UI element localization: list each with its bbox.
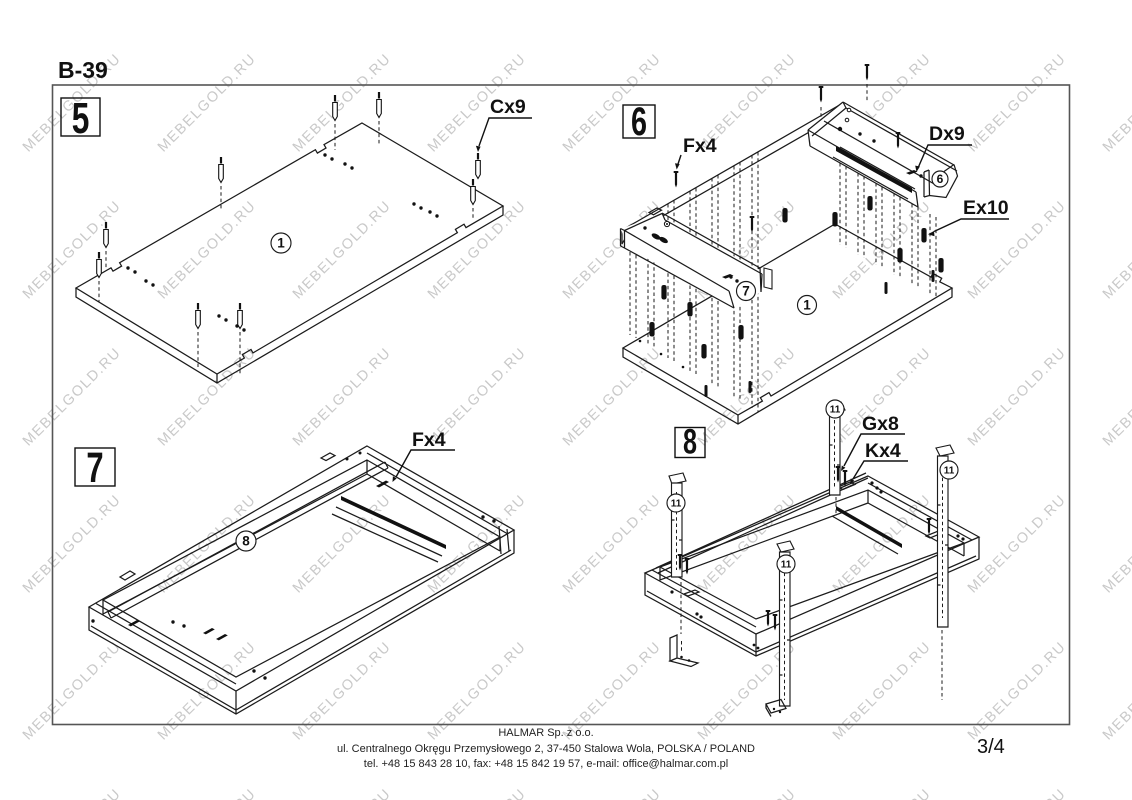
svg-text:3/4: 3/4 xyxy=(977,736,1005,758)
svg-text:6: 6 xyxy=(937,172,944,186)
svg-text:Fx4: Fx4 xyxy=(412,429,446,451)
svg-text:7: 7 xyxy=(742,284,750,299)
svg-text:8: 8 xyxy=(683,423,697,462)
svg-text:Cx9: Cx9 xyxy=(490,96,526,118)
svg-text:11: 11 xyxy=(944,466,955,477)
svg-text:11: 11 xyxy=(671,499,682,510)
svg-text:ul. Centralnego Okręgu Przemys: ul. Centralnego Okręgu Przemysłowego 2, … xyxy=(337,743,755,755)
svg-text:1: 1 xyxy=(803,298,811,313)
svg-text:7: 7 xyxy=(86,443,103,491)
svg-text:8: 8 xyxy=(242,534,250,549)
svg-text:B-39: B-39 xyxy=(58,57,108,83)
svg-text:tel. +48 15 843 28 10, fax: +4: tel. +48 15 843 28 10, fax: +48 15 842 1… xyxy=(364,758,728,770)
svg-text:6: 6 xyxy=(631,99,647,144)
svg-text:Fx4: Fx4 xyxy=(683,135,717,157)
svg-text:Ex10: Ex10 xyxy=(963,197,1009,219)
svg-text:1: 1 xyxy=(277,236,285,251)
svg-text:Dx9: Dx9 xyxy=(929,123,965,145)
svg-text:HALMAR Sp. z o.o.: HALMAR Sp. z o.o. xyxy=(498,727,593,739)
svg-text:Gx8: Gx8 xyxy=(862,413,899,435)
svg-text:Kx4: Kx4 xyxy=(865,440,901,462)
svg-text:11: 11 xyxy=(781,560,792,571)
svg-text:5: 5 xyxy=(72,94,90,143)
svg-text:11: 11 xyxy=(830,405,841,416)
